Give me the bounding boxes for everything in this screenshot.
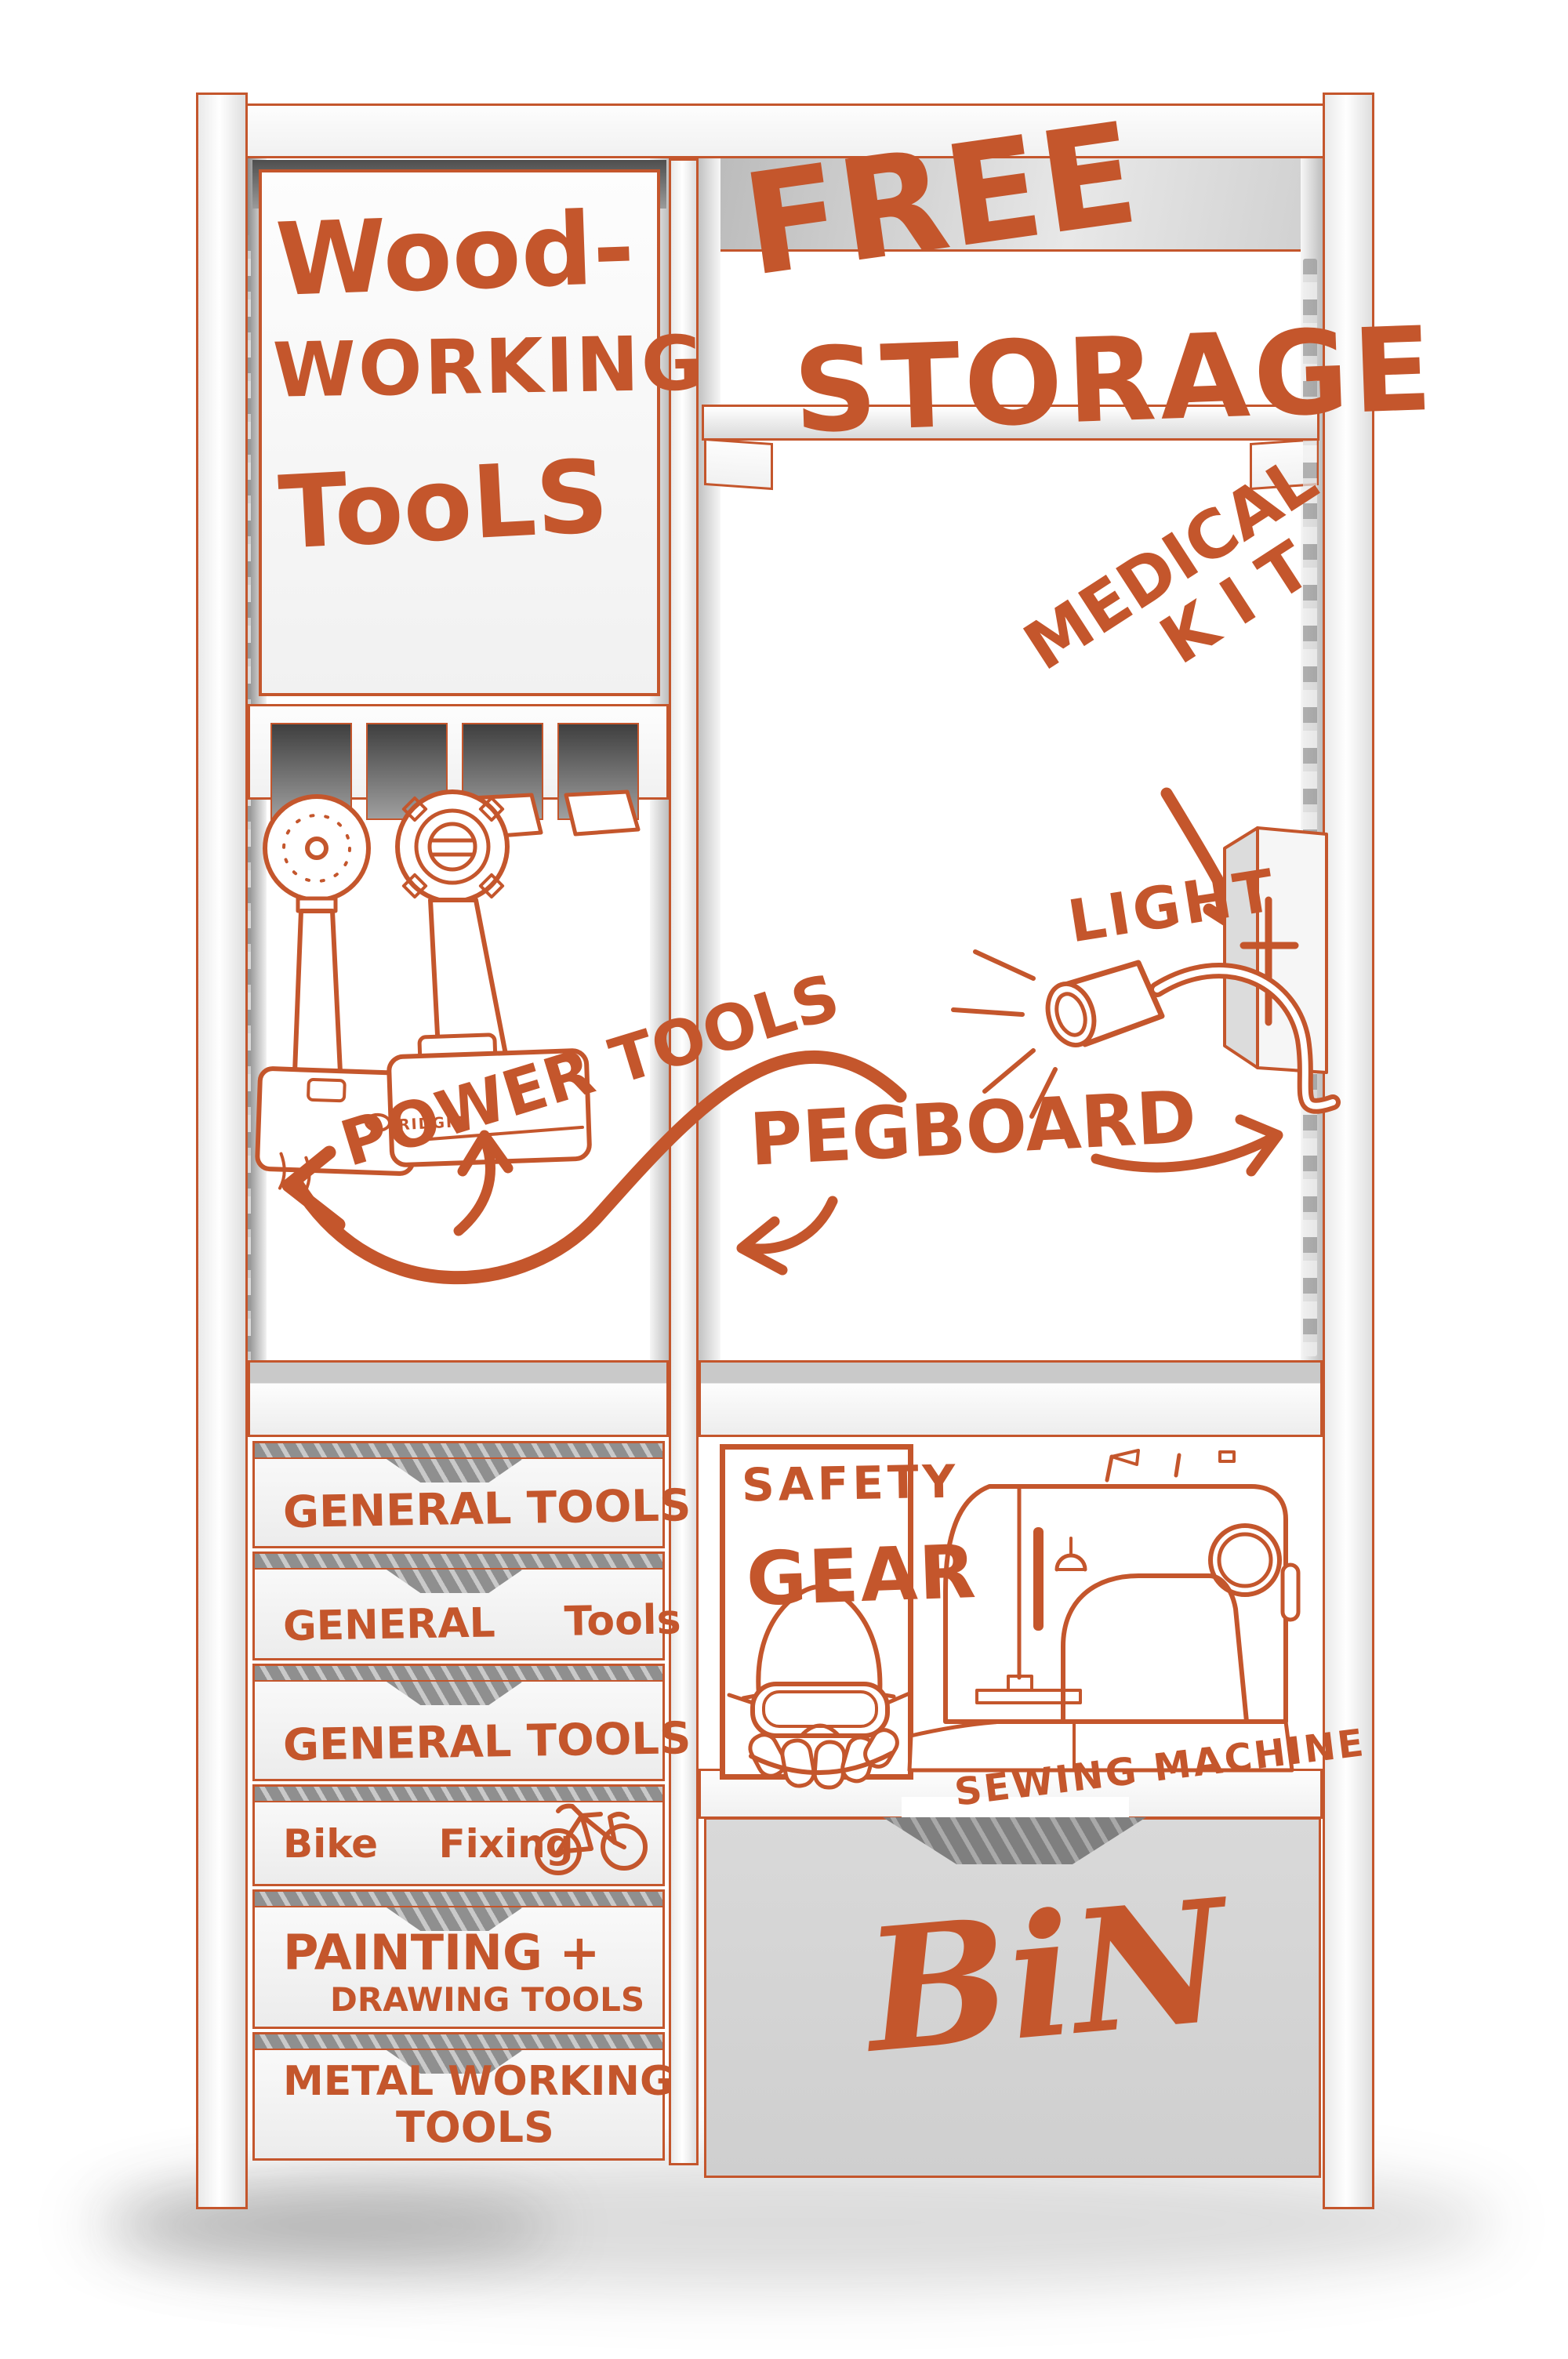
tool-slot-4 [557, 723, 639, 820]
drawer-handle-notch [377, 1570, 532, 1593]
drawer-metal-working: METAL WORKING TOOLS [252, 2032, 665, 2161]
bin-label: BiN [859, 1872, 1234, 2080]
power-tools-arrow [459, 1135, 508, 1231]
drawer-handle-notch [377, 1682, 532, 1705]
drawer-general-tools-2: GENERAL Tools [252, 1551, 665, 1660]
drawer-handle-notch [377, 1459, 532, 1483]
tool-slot-2 [366, 723, 448, 820]
drawer-label: Bike Fixing [283, 1821, 652, 1867]
pegboard-label: PEGBOARD [748, 1080, 1198, 1178]
tool-slot-1 [270, 723, 352, 820]
drawer-handle [255, 1443, 662, 1459]
woodworking-title-line3: TooLS [277, 445, 611, 567]
woodworking-title-line1: Wood- [274, 196, 637, 314]
drawer-label: GENERAL TOOLS [282, 1714, 652, 1771]
drawer-bike-fixing: Bike Fixing [252, 1784, 665, 1886]
drawer-label-line1: PAINTING + [283, 1924, 652, 1981]
drawer-general-tools-3: GENERAL TOOLS [252, 1664, 665, 1781]
drawer-label-line2: DRAWING TOOLS [330, 1980, 652, 2019]
light-label: LIGHT [1065, 861, 1282, 954]
shelf-bracket-left [704, 438, 773, 490]
floor-shadow-left [118, 2187, 557, 2266]
safety-gear-title-line1: SAFETY [741, 1458, 959, 1510]
drawer-general-tools-1: GENERAL TOOLS [252, 1441, 665, 1548]
tool-slot-3 [462, 723, 543, 820]
center-divider [669, 158, 699, 2165]
drawer-handle [255, 1787, 662, 1802]
storage-unit-diagram: Wood- WORKING TooLS RIDGID POWER TOOLS G… [0, 0, 1568, 2359]
left-post [196, 93, 248, 2209]
drawer-label-line2: TOOLS [396, 2103, 652, 2152]
drawer-painting-drawing: PAINTING + DRAWING TOOLS [252, 1889, 665, 2029]
pegboard-arrow-left [742, 1201, 833, 1270]
drawer-handle [255, 1666, 662, 1682]
free-storage-title-line2: STORAGE [792, 309, 1438, 453]
safety-gear-title-line2: GEAR [745, 1534, 978, 1620]
woodworking-title-line2: WORKING [272, 324, 706, 410]
drawer-handle [255, 2034, 662, 2050]
right-shelf-beam [699, 1360, 1323, 1437]
left-shelf-beam [248, 1360, 669, 1437]
drawer-label: GENERAL TOOLS [282, 1481, 652, 1538]
drawer-handle [255, 1554, 662, 1570]
drawer-label-line1: METAL WORKING [283, 2058, 652, 2105]
drawer-handle [255, 1892, 662, 1907]
drawer-label: GENERAL Tools [283, 1597, 652, 1650]
